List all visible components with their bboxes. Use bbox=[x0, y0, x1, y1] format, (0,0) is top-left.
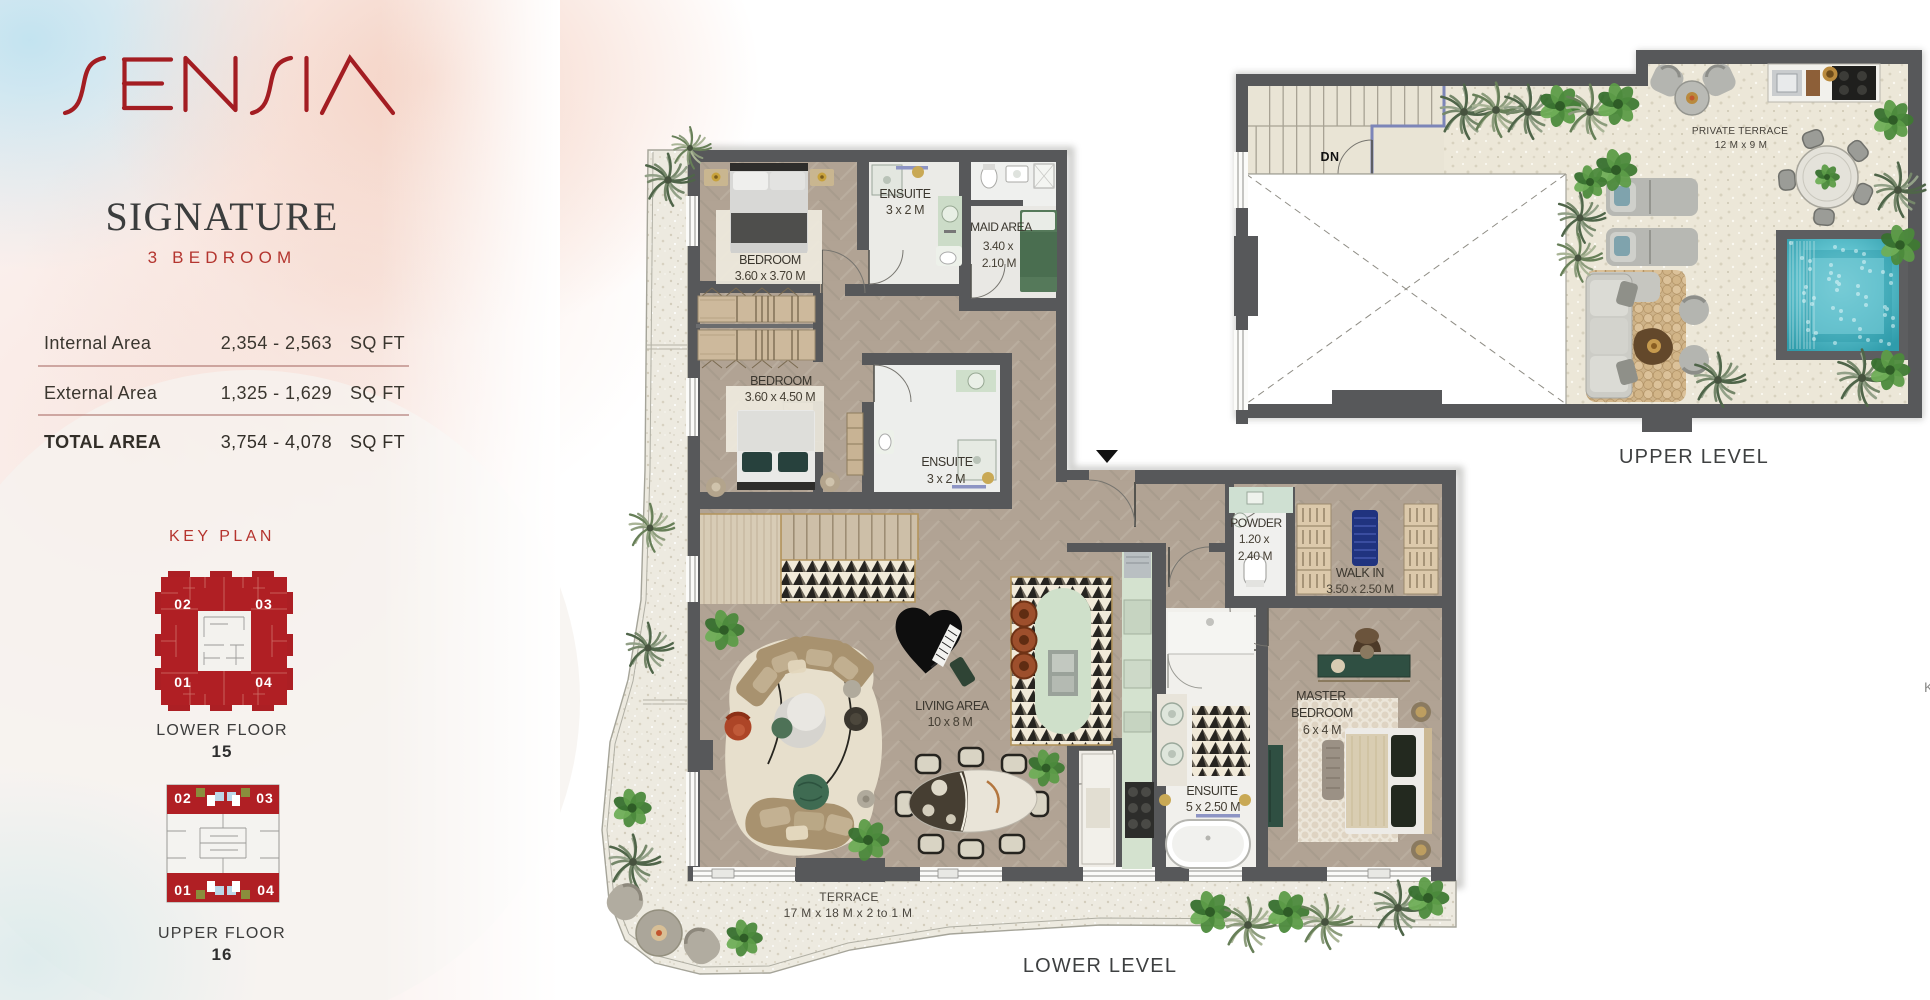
svg-text:SQ FT: SQ FT bbox=[350, 383, 405, 403]
svg-text:3.60 x 3.70 M: 3.60 x 3.70 M bbox=[735, 269, 806, 283]
svg-text:1,325 - 1,629: 1,325 - 1,629 bbox=[221, 383, 332, 403]
svg-text:Internal Area: Internal Area bbox=[44, 333, 152, 353]
svg-text:WALK IN: WALK IN bbox=[1336, 566, 1385, 580]
svg-text:02: 02 bbox=[174, 790, 192, 806]
svg-text:17 M x 18 M x 2 to 1 M: 17 M x 18 M x 2 to 1 M bbox=[784, 906, 913, 920]
svg-text:BEDROOM: BEDROOM bbox=[1291, 706, 1353, 720]
svg-text:LOWER FLOOR: LOWER FLOOR bbox=[156, 722, 287, 739]
svg-text:KEY PLAN: KEY PLAN bbox=[169, 528, 275, 545]
svg-text:3.60 x 4.50 M: 3.60 x 4.50 M bbox=[745, 390, 816, 404]
svg-text:External Area: External Area bbox=[44, 383, 158, 403]
svg-text:1.20 x: 1.20 x bbox=[1239, 532, 1270, 546]
svg-text:01: 01 bbox=[174, 674, 192, 690]
svg-text:ENSUITE: ENSUITE bbox=[879, 187, 930, 201]
svg-text:15: 15 bbox=[212, 742, 233, 761]
svg-text:SQ FT: SQ FT bbox=[350, 333, 405, 353]
svg-text:3 BEDROOM: 3 BEDROOM bbox=[148, 248, 297, 267]
svg-text:MAID AREA: MAID AREA bbox=[970, 220, 1032, 234]
svg-text:03: 03 bbox=[256, 790, 274, 806]
svg-text:POWDER: POWDER bbox=[1230, 516, 1282, 530]
svg-text:LOWER LEVEL: LOWER LEVEL bbox=[1023, 955, 1177, 977]
svg-text:PRIVATE TERRACE: PRIVATE TERRACE bbox=[1692, 126, 1788, 137]
svg-text:16: 16 bbox=[212, 945, 233, 964]
svg-text:04: 04 bbox=[255, 674, 273, 690]
svg-text:2,354 - 2,563: 2,354 - 2,563 bbox=[221, 333, 332, 353]
svg-text:2.10 M: 2.10 M bbox=[982, 256, 1017, 270]
svg-text:DN: DN bbox=[1320, 150, 1339, 164]
svg-text:2.40 M: 2.40 M bbox=[1238, 549, 1273, 563]
svg-text:UPPER FLOOR: UPPER FLOOR bbox=[158, 925, 286, 942]
svg-text:01: 01 bbox=[174, 882, 192, 898]
svg-text:UPPER LEVEL: UPPER LEVEL bbox=[1619, 446, 1769, 468]
svg-text:BEDROOM: BEDROOM bbox=[750, 374, 812, 388]
svg-text:5 x 2.50 M: 5 x 2.50 M bbox=[1186, 800, 1240, 814]
svg-text:6 x 4 M: 6 x 4 M bbox=[1303, 723, 1341, 737]
svg-text:04: 04 bbox=[257, 882, 275, 898]
svg-text:SIGNATURE: SIGNATURE bbox=[105, 194, 338, 239]
svg-text:3 x 2 M: 3 x 2 M bbox=[886, 203, 924, 217]
svg-text:3 x 2 M: 3 x 2 M bbox=[927, 472, 965, 486]
svg-text:TERRACE: TERRACE bbox=[819, 890, 878, 904]
svg-text:MASTER: MASTER bbox=[1296, 689, 1346, 703]
svg-text:3.50 x 2.50 M: 3.50 x 2.50 M bbox=[1326, 582, 1394, 596]
svg-text:3,754 - 4,078: 3,754 - 4,078 bbox=[221, 432, 332, 452]
svg-text:BEDROOM: BEDROOM bbox=[739, 253, 801, 267]
svg-text:ENSUITE: ENSUITE bbox=[1186, 784, 1237, 798]
svg-text:SQ FT: SQ FT bbox=[350, 432, 405, 452]
svg-text:TOTAL AREA: TOTAL AREA bbox=[44, 432, 161, 452]
svg-text:ENSUITE: ENSUITE bbox=[921, 455, 972, 469]
svg-text:12 M x 9 M: 12 M x 9 M bbox=[1715, 140, 1767, 151]
svg-text:K: K bbox=[1924, 679, 1930, 695]
svg-text:03: 03 bbox=[255, 596, 273, 612]
svg-text:10 x 8 M: 10 x 8 M bbox=[928, 715, 973, 729]
svg-text:02: 02 bbox=[174, 596, 192, 612]
svg-text:LIVING AREA: LIVING AREA bbox=[915, 699, 989, 713]
svg-text:3.40 x: 3.40 x bbox=[983, 239, 1014, 253]
